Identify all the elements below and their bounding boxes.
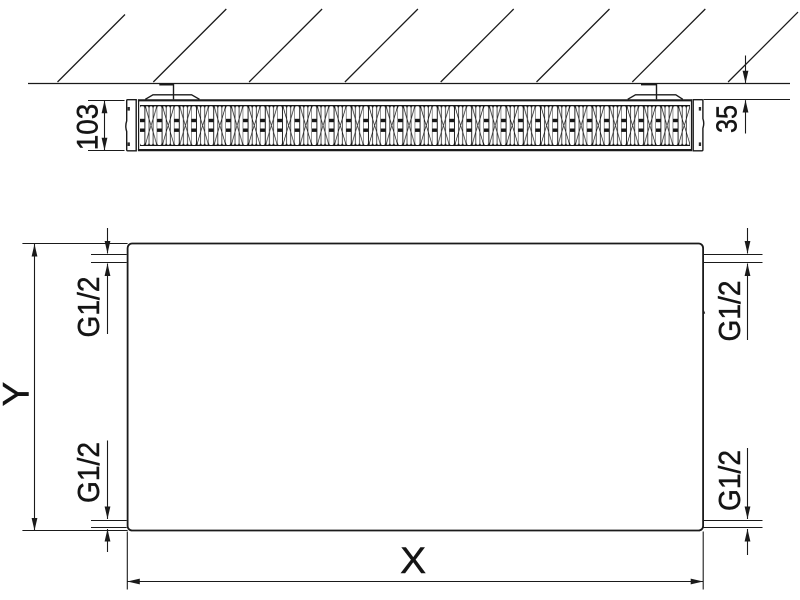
- svg-text:G1/2: G1/2: [712, 281, 747, 342]
- svg-text:G1/2: G1/2: [71, 442, 106, 503]
- svg-text:G1/2: G1/2: [712, 450, 747, 511]
- svg-text:X: X: [400, 540, 426, 581]
- svg-text:103: 103: [71, 104, 104, 151]
- svg-text:G1/2: G1/2: [71, 277, 106, 338]
- svg-text:Y: Y: [0, 382, 37, 407]
- svg-text:35: 35: [712, 105, 744, 133]
